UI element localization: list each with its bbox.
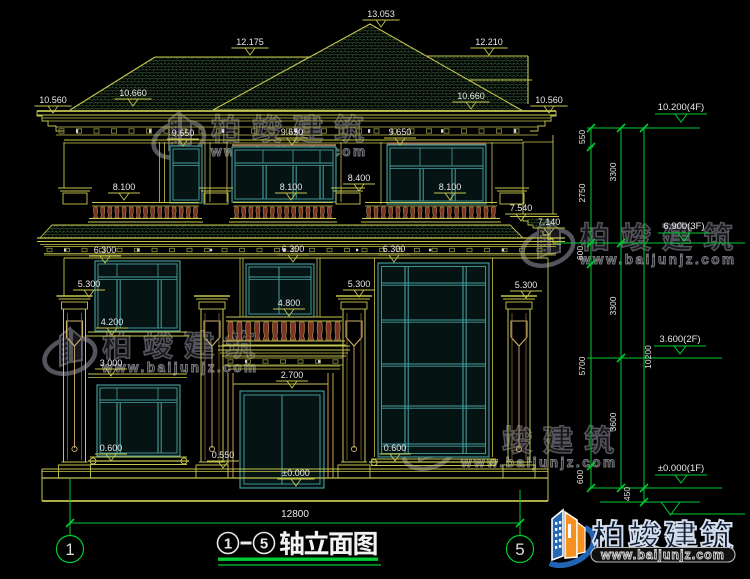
svg-text:13.053: 13.053 bbox=[367, 9, 395, 19]
svg-text:450: 450 bbox=[622, 487, 632, 501]
svg-text:6.300: 6.300 bbox=[282, 244, 305, 254]
svg-text:www.baijunjz.com: www.baijunjz.com bbox=[101, 360, 259, 375]
svg-text:10.660: 10.660 bbox=[457, 91, 485, 101]
svg-text:10.200(4F): 10.200(4F) bbox=[658, 102, 704, 113]
svg-text:10.560: 10.560 bbox=[39, 95, 67, 105]
svg-text:6.300: 6.300 bbox=[94, 245, 117, 255]
svg-text:8.100: 8.100 bbox=[113, 182, 136, 192]
svg-text:5.300: 5.300 bbox=[348, 279, 371, 289]
svg-text:www.baijunjz.com: www.baijunjz.com bbox=[600, 548, 725, 562]
svg-text:±0.000: ±0.000 bbox=[282, 468, 309, 478]
svg-text:600: 600 bbox=[575, 470, 585, 484]
svg-text:5: 5 bbox=[260, 536, 268, 553]
svg-text:0.600: 0.600 bbox=[100, 443, 123, 453]
svg-text:7.140: 7.140 bbox=[538, 217, 561, 227]
svg-text:0.550: 0.550 bbox=[212, 450, 235, 460]
svg-text:8.400: 8.400 bbox=[348, 173, 371, 183]
svg-text:1: 1 bbox=[65, 540, 74, 559]
svg-text:8.100: 8.100 bbox=[439, 182, 462, 192]
svg-text:2.700: 2.700 bbox=[281, 370, 304, 380]
svg-text:6.300: 6.300 bbox=[383, 244, 406, 254]
svg-text:3300: 3300 bbox=[608, 296, 618, 315]
svg-text:3.600(2F): 3.600(2F) bbox=[659, 334, 700, 345]
svg-text:±0.000(1F): ±0.000(1F) bbox=[658, 463, 704, 474]
svg-text:4.800: 4.800 bbox=[278, 298, 301, 308]
svg-text:0.600: 0.600 bbox=[384, 443, 407, 453]
svg-text:www.baijunjz.com: www.baijunjz.com bbox=[579, 252, 737, 267]
svg-text:1: 1 bbox=[224, 536, 232, 553]
svg-text:9.650: 9.650 bbox=[172, 128, 195, 138]
svg-text:7.540: 7.540 bbox=[510, 203, 533, 213]
svg-text:5: 5 bbox=[515, 540, 524, 559]
svg-text:12800: 12800 bbox=[281, 509, 309, 520]
svg-text:12.175: 12.175 bbox=[236, 37, 264, 47]
svg-text:5.300: 5.300 bbox=[78, 279, 101, 289]
svg-text:550: 550 bbox=[577, 130, 587, 144]
svg-text:10.560: 10.560 bbox=[535, 95, 563, 105]
svg-text:4.200: 4.200 bbox=[101, 317, 124, 327]
svg-text:3300: 3300 bbox=[608, 162, 618, 181]
svg-text:8.100: 8.100 bbox=[280, 182, 303, 192]
svg-text:5.300: 5.300 bbox=[515, 280, 538, 290]
svg-text:600: 600 bbox=[575, 246, 585, 260]
svg-text:3600: 3600 bbox=[608, 412, 618, 431]
svg-text:5700: 5700 bbox=[577, 356, 587, 375]
svg-text:3.000: 3.000 bbox=[100, 358, 123, 368]
svg-text:9.650: 9.650 bbox=[281, 127, 304, 137]
svg-text:12.210: 12.210 bbox=[475, 37, 503, 47]
svg-text:10200: 10200 bbox=[643, 345, 653, 369]
svg-text:10.660: 10.660 bbox=[119, 88, 147, 98]
svg-text:6.900(3F): 6.900(3F) bbox=[663, 221, 704, 232]
svg-text:9.650: 9.650 bbox=[389, 127, 412, 137]
svg-text:2750: 2750 bbox=[577, 183, 587, 202]
